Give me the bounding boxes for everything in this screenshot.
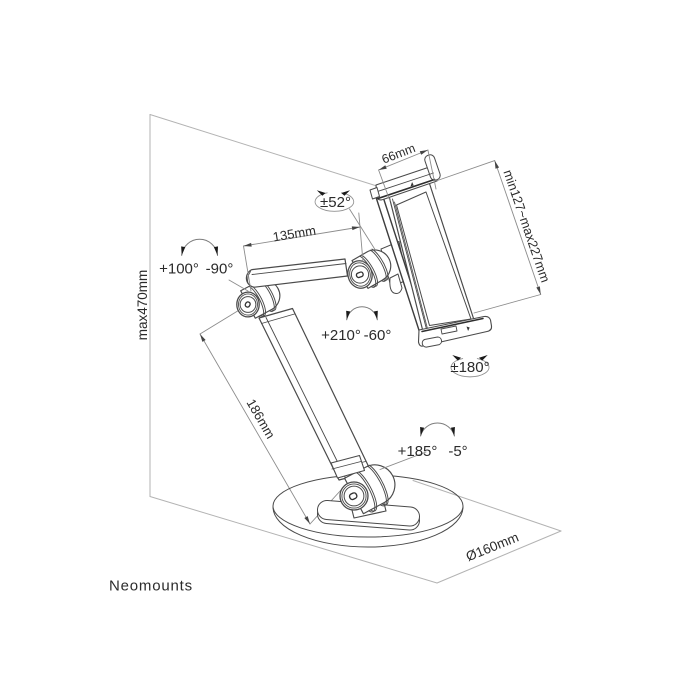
- svg-text:-5°: -5°: [448, 443, 467, 460]
- svg-text:+210°: +210°: [321, 327, 361, 344]
- svg-text:±52°: ±52°: [320, 194, 351, 211]
- svg-text:-60°: -60°: [364, 327, 392, 344]
- svg-text:max470mm: max470mm: [135, 270, 150, 341]
- svg-text:±180°: ±180°: [450, 359, 489, 376]
- svg-text:+185°: +185°: [398, 443, 438, 460]
- svg-text:Neomounts: Neomounts: [109, 578, 193, 595]
- svg-text:-90°: -90°: [206, 261, 234, 278]
- svg-text:+100°: +100°: [159, 261, 199, 278]
